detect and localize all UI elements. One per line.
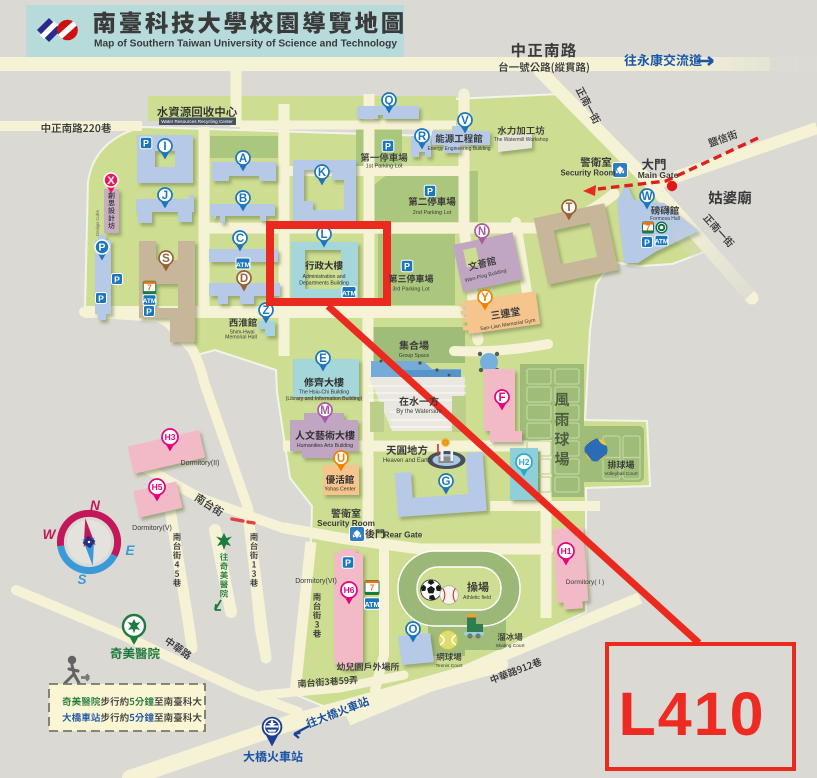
svg-text:R: R	[418, 131, 427, 143]
svg-text:P: P	[143, 139, 149, 149]
svg-text:3rd Parking Lot: 3rd Parking Lot	[392, 287, 430, 293]
svg-text:2nd Parking Lot: 2nd Parking Lot	[413, 210, 452, 216]
svg-text:H3: H3	[165, 432, 176, 442]
svg-text:(Library and Information Build: (Library and Information Building)	[286, 396, 363, 402]
svg-text:P: P	[385, 142, 391, 152]
svg-text:By the Waterside: By the Waterside	[396, 409, 442, 415]
svg-text:H6: H6	[344, 585, 355, 595]
svg-text:Humanities Arts Building: Humanities Arts Building	[297, 443, 353, 449]
svg-text:Dormitory(II): Dormitory(II)	[181, 460, 220, 467]
svg-text:P: P	[98, 294, 104, 304]
svg-text:Dormitory(VI): Dormitory(VI)	[295, 578, 337, 585]
svg-text:Tennis Court: Tennis Court	[436, 663, 464, 669]
svg-text:O: O	[409, 624, 418, 636]
svg-text:Energy Engineering Building: Energy Engineering Building	[427, 146, 490, 152]
svg-text:Administration and: Administration and	[303, 274, 346, 280]
svg-text:Yohas Center: Yohas Center	[324, 487, 356, 493]
svg-text:Volleyball Court: Volleyball Court	[604, 471, 638, 477]
svg-text:Security Room: Security Room	[560, 169, 615, 178]
svg-text:The Watermill Workshop: The Watermill Workshop	[494, 137, 549, 143]
svg-text:Main Gate: Main Gate	[638, 170, 679, 180]
svg-text:P: P	[98, 242, 105, 254]
svg-text:X: X	[107, 175, 115, 187]
svg-text:Formosa Hall: Formosa Hall	[650, 216, 680, 222]
svg-text:H5: H5	[152, 482, 163, 492]
svg-text:I: I	[163, 141, 166, 153]
svg-text:H1: H1	[561, 546, 572, 556]
svg-text:Heaven and Earth: Heaven and Earth	[383, 458, 431, 464]
svg-text:E: E	[319, 353, 327, 365]
svg-text:J: J	[162, 190, 168, 202]
svg-text:Y: Y	[481, 292, 489, 304]
svg-text:Group Space: Group Space	[399, 353, 430, 359]
svg-text:ATM: ATM	[143, 298, 157, 305]
svg-text:Dormitory(V): Dormitory(V)	[132, 525, 172, 532]
svg-text:Dormitory( I ): Dormitory( I )	[566, 579, 604, 586]
svg-text:N: N	[478, 226, 486, 238]
svg-text:P: P	[644, 238, 650, 248]
svg-text:L410: L410	[618, 680, 765, 748]
svg-text:7: 7	[646, 223, 651, 233]
svg-text:Water Resources Recycling Cent: Water Resources Recycling Center	[161, 119, 233, 124]
svg-text:A: A	[239, 153, 247, 165]
svg-text:Q: Q	[385, 95, 394, 107]
svg-text:S: S	[162, 253, 170, 265]
svg-text:P: P	[404, 262, 410, 272]
svg-text:P: P	[114, 275, 120, 285]
svg-text:D: D	[240, 273, 248, 285]
svg-text:Memorial Hall: Memorial Hall	[225, 335, 257, 341]
svg-text:P: P	[146, 307, 152, 317]
svg-text:U: U	[337, 453, 345, 465]
svg-text:V: V	[461, 115, 469, 127]
svg-text:Skating Court: Skating Court	[495, 643, 525, 649]
svg-text:G: G	[442, 476, 451, 488]
svg-text:M: M	[320, 405, 330, 417]
svg-text:F: F	[498, 392, 505, 404]
svg-text:H2: H2	[519, 457, 530, 467]
svg-text:K: K	[318, 167, 327, 179]
svg-text:Rear Gate: Rear Gate	[384, 531, 423, 540]
svg-text:1st Parking Lot: 1st Parking Lot	[366, 164, 403, 170]
svg-text:ATM: ATM	[655, 239, 669, 246]
svg-text:7: 7	[370, 583, 375, 593]
svg-text:E: E	[125, 543, 135, 558]
svg-text:Security Room: Security Room	[317, 519, 375, 528]
svg-text:ATM: ATM	[365, 601, 380, 609]
svg-text:ATM: ATM	[342, 290, 357, 297]
svg-text:Map of Southern Taiwan Univers: Map of Southern Taiwan University of Sci…	[94, 39, 398, 50]
svg-text:Athletic field: Athletic field	[463, 595, 491, 601]
svg-text:S: S	[77, 572, 86, 587]
svg-text:P: P	[427, 187, 433, 197]
svg-text:Z: Z	[262, 305, 269, 317]
svg-text:B: B	[239, 193, 247, 205]
svg-text:W: W	[43, 527, 57, 542]
svg-text:P: P	[345, 558, 351, 568]
svg-text:The Hsiu-Chi Building: The Hsiu-Chi Building	[299, 390, 349, 396]
svg-text:ATM: ATM	[236, 262, 251, 269]
svg-text:7: 7	[147, 283, 152, 293]
svg-text:W: W	[642, 191, 653, 203]
svg-text:C: C	[236, 233, 244, 245]
svg-text:T: T	[565, 202, 572, 214]
svg-text:Departments Building: Departments Building	[299, 281, 349, 287]
svg-text:N: N	[90, 498, 100, 513]
svg-text:L: L	[320, 229, 327, 241]
svg-text:Design Cube: Design Cube	[95, 209, 100, 236]
